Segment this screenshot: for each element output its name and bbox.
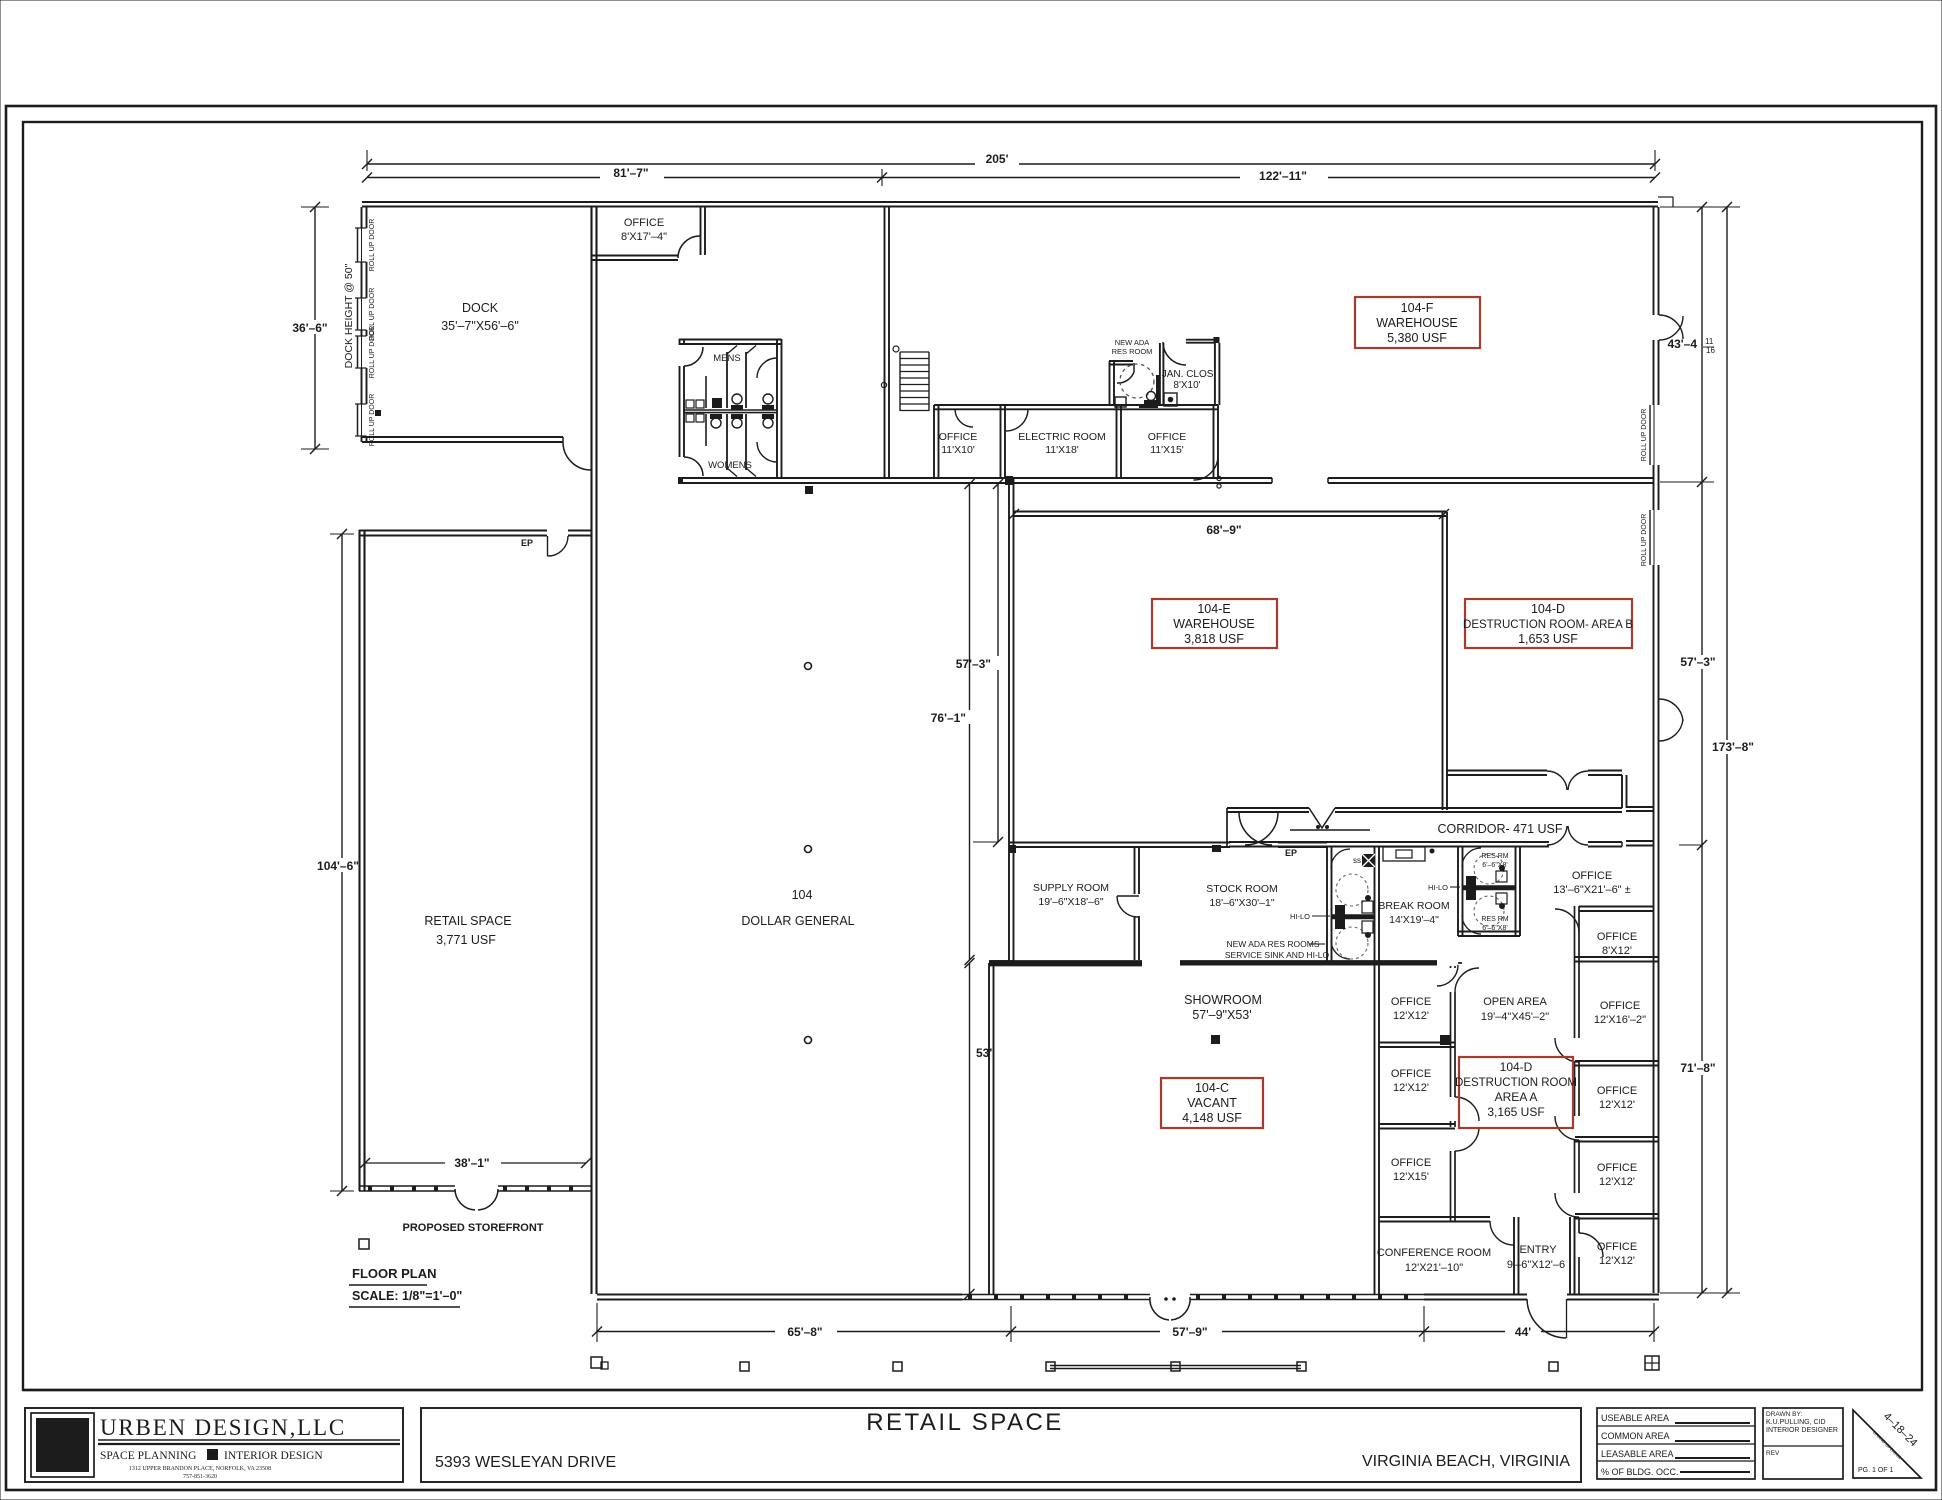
svg-text:ENTRY: ENTRY [1519,1244,1557,1256]
svg-text:104: 104 [792,888,813,902]
svg-text:11'X18': 11'X18' [1045,444,1079,456]
svg-text:ROLL UP DOOR: ROLL UP DOOR [369,394,376,447]
svg-text:65'–8": 65'–8" [787,1325,822,1339]
svg-text:8'X10': 8'X10' [1173,380,1200,391]
svg-text:COMMON AREA: COMMON AREA [1601,1431,1670,1441]
svg-text:OFFICE: OFFICE [1391,1157,1431,1169]
svg-text:104-C: 104-C [1195,1081,1229,1095]
svg-text:OFFICE: OFFICE [1391,1068,1431,1080]
svg-text:SCALE: 1/8"=1'–0": SCALE: 1/8"=1'–0" [352,1289,462,1303]
svg-text:3,818 USF: 3,818 USF [1184,632,1244,646]
svg-text:DESTRUCTION ROOM- AREA B: DESTRUCTION ROOM- AREA B [1463,619,1633,631]
svg-text:OFFICE: OFFICE [1597,931,1637,943]
svg-text:STOCK ROOM: STOCK ROOM [1206,883,1278,895]
svg-text:K.U.PULLING, CID: K.U.PULLING, CID [1766,1419,1826,1426]
svg-text:INTERIOR DESIGNER: INTERIOR DESIGNER [1766,1427,1838,1434]
svg-text:MENS: MENS [713,353,740,364]
svg-text:57'–3": 57'–3" [1680,655,1715,669]
svg-text:122'–11": 122'–11" [1259,169,1307,183]
svg-text:ELECTRIC ROOM: ELECTRIC ROOM [1018,431,1106,443]
svg-text:43'–4: 43'–4 [1667,337,1697,351]
svg-text:104-D: 104-D [1531,602,1565,616]
svg-text:1312 UPPER BRANDON PLACE, NORF: 1312 UPPER BRANDON PLACE, NORFOLK, VA 23… [129,1466,271,1472]
svg-text:6'–6"X8': 6'–6"X8' [1482,925,1507,932]
svg-text:OFFICE: OFFICE [1391,996,1431,1008]
svg-text:ROLL UP DOOR: ROLL UP DOOR [369,326,376,379]
svg-text:81'–7": 81'–7" [613,166,648,180]
svg-text:FLOOR PLAN: FLOOR PLAN [352,1266,437,1281]
svg-text:12'X12': 12'X12' [1393,1010,1429,1022]
svg-text:HI-LO: HI-LO [1428,883,1448,892]
svg-text:SPACE PLANNING: SPACE PLANNING [100,1450,196,1462]
svg-text:RES RM: RES RM [1481,853,1508,860]
svg-text:38'–1": 38'–1" [454,1156,489,1170]
svg-text:DOLLAR GENERAL: DOLLAR GENERAL [741,914,854,928]
svg-text:12'X12': 12'X12' [1599,1176,1635,1188]
svg-text:BREAK ROOM: BREAK ROOM [1378,900,1449,912]
svg-text:JAN. CLOS.: JAN. CLOS. [1162,369,1216,380]
svg-text:OFFICE: OFFICE [1148,431,1187,443]
svg-text:6'–6"X8': 6'–6"X8' [1482,862,1507,869]
svg-text:9'–6"X12'–6: 9'–6"X12'–6 [1507,1259,1565,1271]
svg-text:44': 44' [1515,1325,1531,1339]
svg-text:PG. 1 OF 1: PG. 1 OF 1 [1858,1467,1894,1474]
svg-text:DOCK HEIGHT @ 50": DOCK HEIGHT @ 50" [343,263,355,368]
svg-text:NEW ADA RES ROOMS: NEW ADA RES ROOMS [1226,939,1319,949]
svg-text:INTERIOR DESIGN: INTERIOR DESIGN [224,1450,323,1462]
svg-text:12'X15': 12'X15' [1393,1171,1429,1183]
svg-text:12'X16'–2": 12'X16'–2" [1594,1014,1646,1026]
svg-text:104'–6": 104'–6" [317,859,359,873]
svg-text:104-F: 104-F [1401,301,1434,315]
svg-text:DOCK: DOCK [462,301,499,315]
svg-text:3,771 USF: 3,771 USF [436,933,496,947]
svg-text:11'X15': 11'X15' [1150,444,1184,456]
svg-text:DRAWN BY:: DRAWN BY: [1766,1411,1802,1418]
svg-text:205': 205' [986,152,1009,166]
svg-text:VIRGINIA BEACH, VIRGINIA: VIRGINIA BEACH, VIRGINIA [1362,1453,1570,1470]
svg-text:WAREHOUSE: WAREHOUSE [1173,617,1255,631]
svg-text:71'–8": 71'–8" [1680,1061,1715,1075]
svg-text:ROLL UP DOOR: ROLL UP DOOR [369,219,376,272]
svg-text:757-851-3620: 757-851-3620 [183,1474,217,1480]
svg-text:76'–1": 76'–1" [931,711,966,725]
svg-text:11'X10': 11'X10' [941,444,975,456]
svg-text:36'–6": 36'–6" [292,321,327,335]
svg-text:5393 WESLEYAN DRIVE: 5393 WESLEYAN DRIVE [435,1454,616,1471]
svg-text:EP: EP [1285,848,1297,858]
svg-text:35'–7"X56'–6": 35'–7"X56'–6" [441,319,519,333]
svg-text:14'X19'–4": 14'X19'–4" [1389,914,1439,926]
svg-text:11: 11 [1705,337,1714,346]
svg-text:12'X12': 12'X12' [1393,1082,1429,1094]
svg-text:OFFICE: OFFICE [1597,1085,1637,1097]
svg-text:8'X17'–4": 8'X17'–4" [621,231,667,243]
svg-text:DESTRUCTION ROOM: DESTRUCTION ROOM [1455,1077,1577,1089]
svg-text:173'–8": 173'–8" [1712,740,1754,754]
svg-text:8'X12': 8'X12' [1602,945,1632,957]
svg-text:WOMENS: WOMENS [708,460,752,471]
svg-text:USEABLE AREA: USEABLE AREA [1601,1413,1669,1423]
svg-text:HI-LO: HI-LO [1290,912,1310,921]
svg-text:OFFICE: OFFICE [1572,870,1612,882]
svg-text:LEASABLE AREA: LEASABLE AREA [1601,1449,1674,1459]
svg-text:SERVICE SINK AND HI-LO: SERVICE SINK AND HI-LO [1225,950,1330,960]
svg-text:RES RM: RES RM [1481,916,1508,923]
svg-text:CONFERENCE ROOM: CONFERENCE ROOM [1377,1247,1491,1259]
svg-text:5,380 USF: 5,380 USF [1387,331,1447,345]
svg-text:NEW ADA: NEW ADA [1115,338,1150,347]
svg-text:OFFICE: OFFICE [1597,1162,1637,1174]
svg-text:104-E: 104-E [1197,602,1230,616]
svg-text:WAREHOUSE: WAREHOUSE [1376,316,1458,330]
svg-text:19'–6"X18'–6": 19'–6"X18'–6" [1038,896,1103,908]
svg-text:REV: REV [1766,1450,1780,1457]
svg-text:57'–3": 57'–3" [956,657,991,671]
svg-text:12'X12': 12'X12' [1599,1099,1635,1111]
svg-text:19'–4"X45'–2": 19'–4"X45'–2" [1481,1011,1549,1023]
svg-text:3,165 USF: 3,165 USF [1487,1105,1544,1119]
svg-text:SHOWROOM: SHOWROOM [1184,993,1262,1007]
svg-text:EP: EP [521,538,533,548]
svg-text:68'–9": 68'–9" [1206,523,1241,537]
svg-text:CORRIDOR- 471 USF: CORRIDOR- 471 USF [1437,822,1562,836]
svg-text:13'–6"X21'–6" ±: 13'–6"X21'–6" ± [1553,884,1630,896]
svg-text:OPEN AREA: OPEN AREA [1483,996,1547,1008]
svg-text:4,148 USF: 4,148 USF [1182,1111,1242,1125]
svg-text:AREA A: AREA A [1495,1090,1538,1104]
svg-text:ROLL UP DOOR: ROLL UP DOOR [1641,409,1648,462]
svg-text:OFFICE: OFFICE [1600,1000,1640,1012]
svg-text:ss: ss [1353,856,1361,865]
svg-text:SUPPLY ROOM: SUPPLY ROOM [1033,882,1109,894]
svg-text:RES ROOM: RES ROOM [1112,347,1153,356]
svg-text:VACANT: VACANT [1187,1096,1237,1110]
svg-text:ROLL UP DOOR: ROLL UP DOOR [1641,514,1648,567]
svg-text:12'X21'–10": 12'X21'–10" [1405,1262,1463,1274]
svg-text:OFFICE: OFFICE [1597,1241,1637,1253]
svg-text:PROPOSED STOREFRONT: PROPOSED STOREFRONT [403,1222,544,1234]
svg-text:RETAIL SPACE: RETAIL SPACE [866,1409,1064,1436]
svg-text:57'–9": 57'–9" [1172,1325,1207,1339]
svg-text:104-D: 104-D [1500,1060,1533,1074]
svg-text:% OF BLDG. OCC.: % OF BLDG. OCC. [1601,1467,1679,1477]
svg-text:57'–9"X53': 57'–9"X53' [1192,1008,1251,1022]
svg-text:OFFICE: OFFICE [939,431,978,443]
svg-text:1,653 USF: 1,653 USF [1518,632,1578,646]
svg-text:RETAIL SPACE: RETAIL SPACE [424,914,511,928]
svg-text:URBEN DESIGN,LLC: URBEN DESIGN,LLC [100,1415,346,1440]
svg-text:12'X12': 12'X12' [1599,1255,1635,1267]
svg-text:OFFICE: OFFICE [624,217,664,229]
svg-text:18'–6"X30'–1": 18'–6"X30'–1" [1209,897,1274,909]
